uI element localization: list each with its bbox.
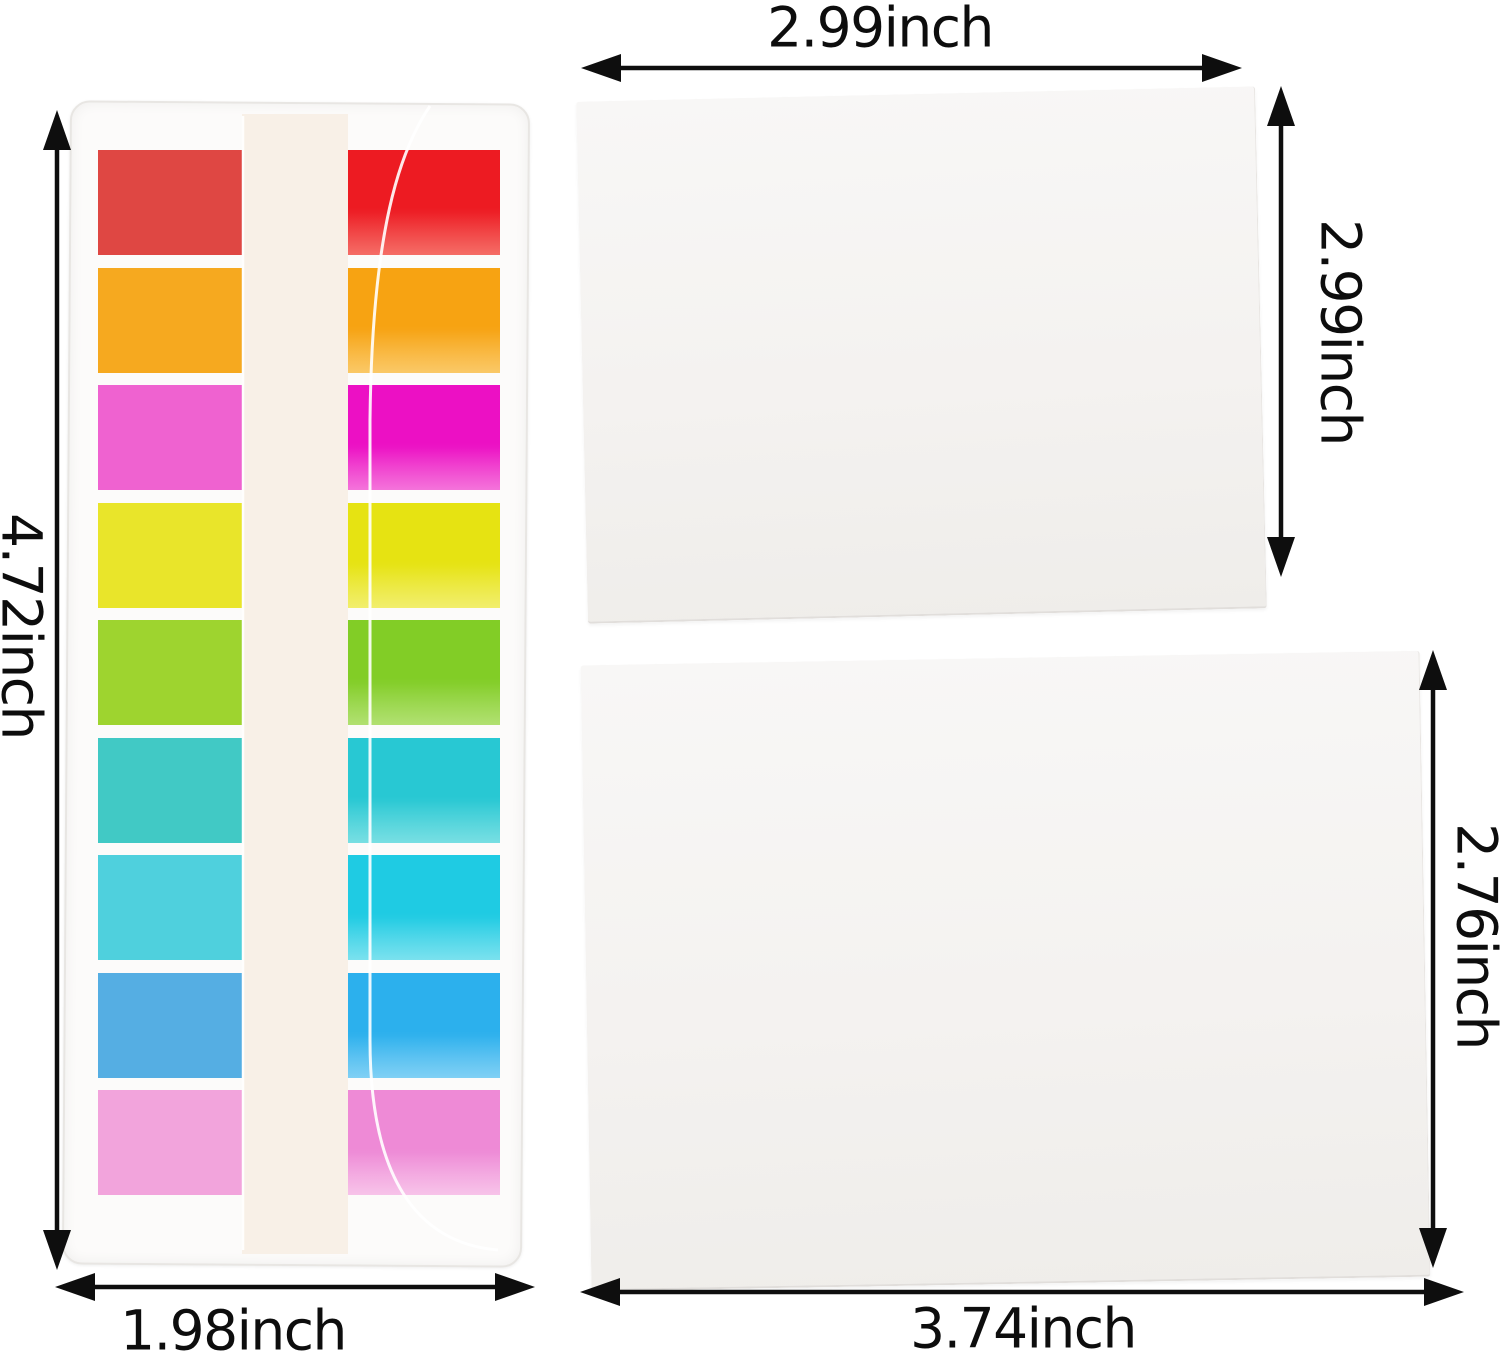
large-note-pad (581, 651, 1431, 1292)
tab-row-light-pink (98, 1090, 500, 1195)
tab-right-cyan (348, 855, 500, 960)
tab-row-red (98, 150, 500, 255)
square-pad-height-arrow (1267, 86, 1295, 577)
tab-left-green (98, 620, 242, 725)
tab-right-light-pink (348, 1090, 500, 1195)
tab-left-red (98, 150, 242, 255)
tab-left-light-pink (98, 1090, 242, 1195)
tab-sheen (348, 1090, 500, 1195)
tab-sheen (348, 385, 500, 490)
tab-rows (98, 150, 500, 1300)
tab-row-orange (98, 268, 500, 373)
tab-right-blue (348, 973, 500, 1078)
tab-sheen (348, 855, 500, 960)
tab-left-teal (98, 738, 242, 843)
large-pad-height-label: 2.76inch (1449, 823, 1500, 1049)
tab-sheen (348, 973, 500, 1078)
tab-sheen (348, 738, 500, 843)
square-note-pad (576, 86, 1267, 623)
tab-right-magenta (348, 385, 500, 490)
tab-sheen (348, 503, 500, 608)
tab-row-teal (98, 738, 500, 843)
tab-left-magenta (98, 385, 242, 490)
tab-right-green (348, 620, 500, 725)
large-pad-width-label: 3.74inch (910, 1302, 1136, 1355)
square-pad-width-label: 2.99inch (767, 1, 993, 56)
tab-right-yellow (348, 503, 500, 608)
tab-left-blue (98, 973, 242, 1078)
tab-sheen (348, 150, 500, 255)
tab-sheen (348, 268, 500, 373)
tab-left-cyan (98, 855, 242, 960)
tab-right-red (348, 150, 500, 255)
tab-row-yellow (98, 503, 500, 608)
square-pad-height-label: 2.99inch (1313, 219, 1368, 445)
tab-right-orange (348, 268, 500, 373)
case-width-label: 1.98inch (120, 1304, 346, 1355)
tab-row-magenta (98, 385, 500, 490)
tab-left-yellow (98, 503, 242, 608)
tab-row-blue (98, 973, 500, 1078)
tab-row-cyan (98, 855, 500, 960)
tab-sheen (348, 620, 500, 725)
case-height-label: 4.72inch (0, 513, 49, 739)
tab-row-green (98, 620, 500, 725)
tab-left-orange (98, 268, 242, 373)
tab-right-teal (348, 738, 500, 843)
product-dimension-diagram: 4.72inch 1.98inch 2.99inch 2.99inch 2.76… (0, 0, 1500, 1355)
